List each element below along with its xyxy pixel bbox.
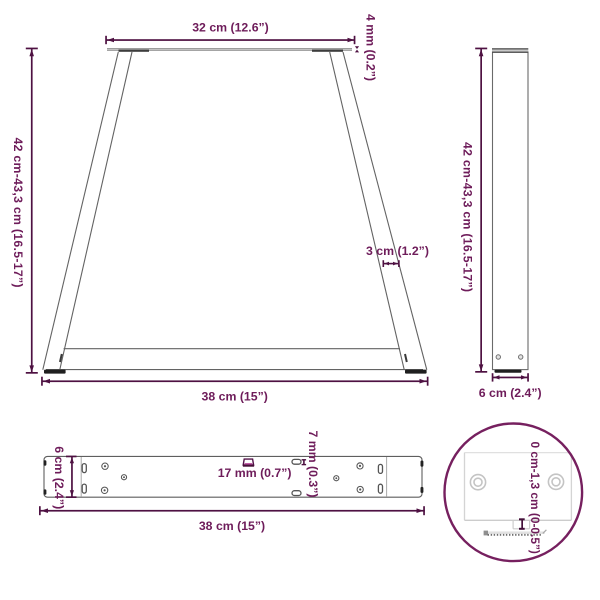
svg-text:6 cm (2.4”): 6 cm (2.4”) [52, 446, 66, 509]
svg-text:0 cm-1,3 cm (0-0.5”): 0 cm-1,3 cm (0-0.5”) [528, 442, 542, 554]
svg-text:32 cm (12.6”): 32 cm (12.6”) [192, 20, 269, 34]
svg-text:4 mm (0.2”): 4 mm (0.2”) [364, 14, 378, 81]
svg-text:7 mm (0.3”): 7 mm (0.3”) [306, 431, 320, 498]
svg-text:42 cm-43,3 cm (16.5-17”): 42 cm-43,3 cm (16.5-17”) [11, 138, 25, 288]
svg-text:3 cm (1.2”): 3 cm (1.2”) [366, 244, 429, 258]
svg-text:17 mm (0.7”): 17 mm (0.7”) [218, 466, 292, 480]
svg-text:6 cm (2.4”): 6 cm (2.4”) [479, 386, 542, 400]
svg-text:42 cm-43,3 cm (16.5-17”): 42 cm-43,3 cm (16.5-17”) [461, 142, 475, 292]
svg-text:38 cm (15”): 38 cm (15”) [199, 519, 265, 533]
svg-text:38 cm (15”): 38 cm (15”) [202, 389, 268, 403]
